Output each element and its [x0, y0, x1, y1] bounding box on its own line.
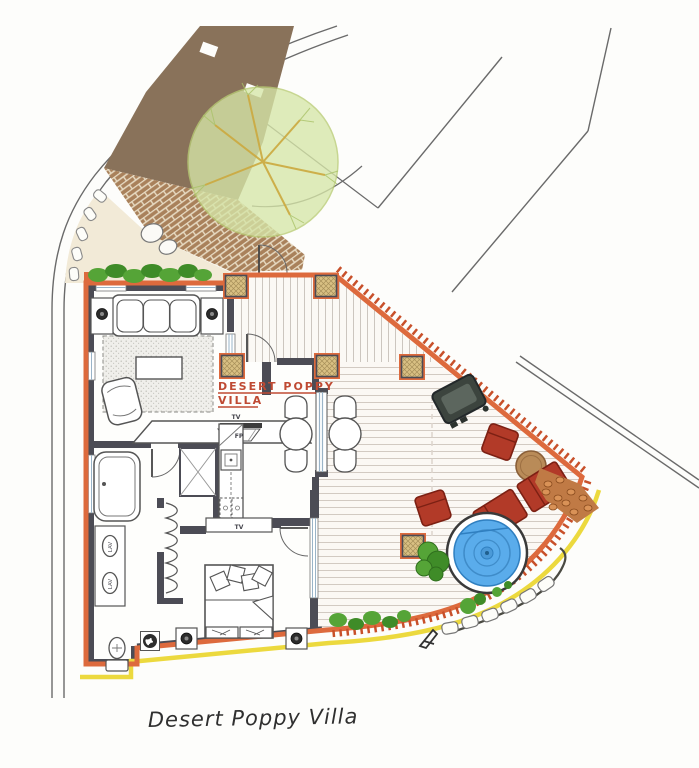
ceiling-fan-icon [141, 632, 160, 651]
lot-line-1 [378, 57, 502, 208]
villa-tag-line2: VILLA [218, 394, 263, 407]
deck-post [313, 273, 339, 299]
dining-set-deck [329, 396, 361, 472]
villa-tag-line1: DESERT POPPY [218, 380, 335, 393]
bedroom-tv-label: TV [235, 524, 244, 531]
deck-post [223, 273, 249, 299]
deck-post [399, 354, 425, 380]
plan-caption: Desert Poppy Villa [148, 704, 359, 732]
toilet-tank [106, 660, 128, 671]
lamp-icon [207, 309, 218, 320]
bathtub [94, 452, 140, 521]
window-bedroom-east [310, 518, 318, 598]
lav-label-2: LAV [108, 579, 114, 590]
footboard-2 [240, 627, 272, 638]
tub-drain [102, 482, 106, 486]
stepping-stone [499, 598, 518, 615]
lot-line-2b [588, 28, 611, 131]
spa-pool [447, 513, 527, 593]
deck-post [219, 353, 245, 379]
lamp-icon [97, 309, 108, 320]
stepping-stone [481, 607, 500, 623]
lot-line-2 [452, 131, 588, 292]
slider-door [316, 392, 327, 472]
stepping-stone [461, 615, 479, 630]
dining-set-inside [280, 396, 312, 472]
lav-label-1: LAV [108, 542, 114, 553]
lamp-icon [181, 633, 192, 644]
deck-post [314, 353, 340, 379]
living-fp-label: FP [235, 433, 244, 440]
lamp-icon [291, 633, 302, 644]
stepping-stone [441, 621, 459, 635]
floor-plan-canvas: LAV LAV TV [0, 0, 699, 768]
coffee-table [136, 357, 182, 379]
living-tv-label: TV [232, 414, 241, 421]
footboard-1 [206, 627, 238, 638]
